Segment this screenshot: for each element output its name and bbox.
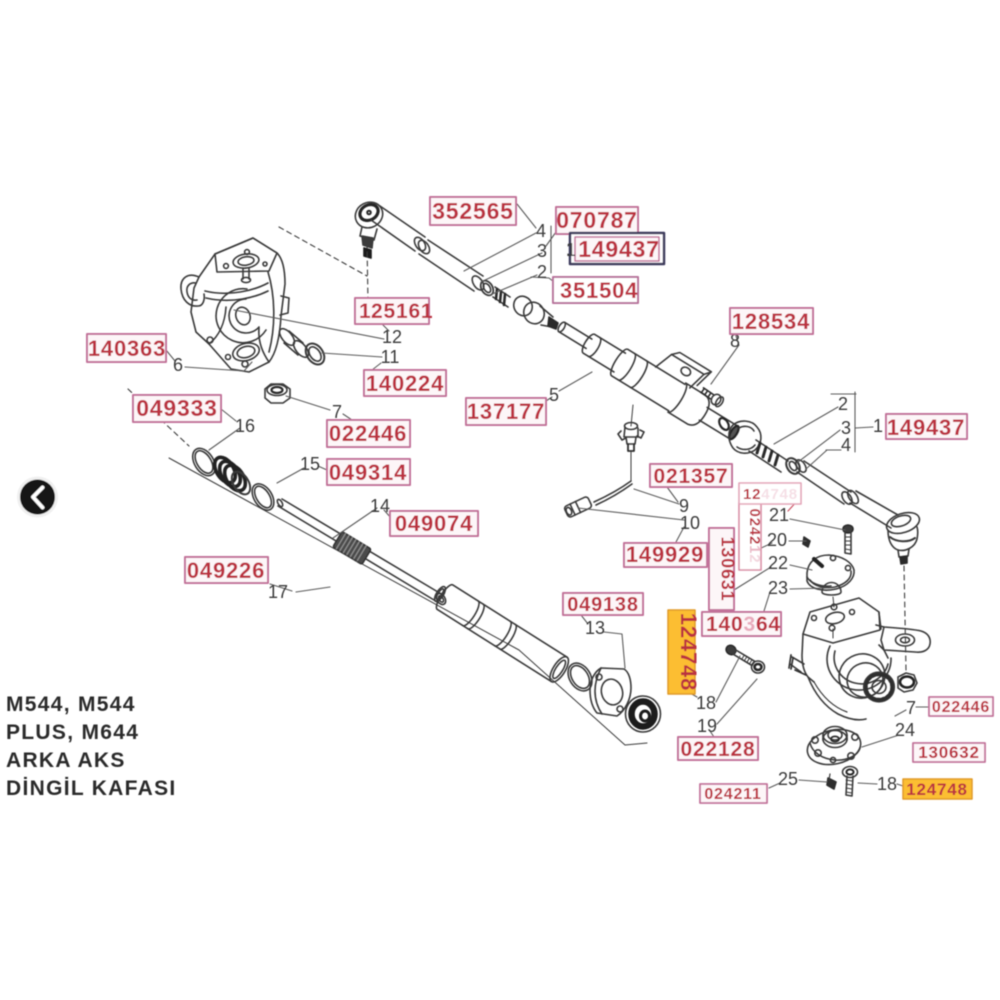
svg-text:124748: 124748 [676,613,701,691]
svg-text:128534: 128534 [732,309,810,334]
svg-text:1: 1 [873,416,883,436]
svg-text:022128: 022128 [681,738,756,761]
svg-text:22: 22 [768,553,788,573]
svg-text:1: 1 [359,300,371,323]
svg-text:24: 24 [895,720,915,740]
svg-text:11: 11 [381,347,400,367]
svg-text:19: 19 [697,716,717,736]
svg-text:049138: 049138 [567,594,639,616]
svg-text:10: 10 [680,513,700,533]
svg-text:024211: 024211 [704,786,761,803]
svg-text:124748: 124748 [743,486,798,503]
svg-text:7: 7 [906,698,916,718]
svg-text:PLUS, M644: PLUS, M644 [6,721,139,744]
svg-text:14: 14 [370,496,390,516]
svg-text:352565: 352565 [432,198,514,224]
svg-text:18: 18 [696,693,716,713]
svg-text:3: 3 [537,241,547,261]
svg-text:022446: 022446 [329,421,407,446]
svg-text:15: 15 [300,454,320,474]
svg-text:1: 1 [566,240,576,260]
svg-text:137177: 137177 [467,399,545,424]
svg-text:16: 16 [235,416,255,436]
svg-text:13: 13 [585,618,605,638]
svg-text:4: 4 [536,221,546,241]
svg-text:23: 23 [768,578,788,598]
svg-text:140224: 140224 [366,371,444,396]
svg-text:049314: 049314 [329,460,407,485]
svg-text:21: 21 [769,505,789,525]
svg-text:130632: 130632 [918,743,980,762]
svg-text:M544, M544: M544, M544 [6,693,136,716]
svg-text:124748: 124748 [906,780,968,799]
svg-text:5: 5 [549,385,559,405]
svg-text:049333: 049333 [136,395,218,421]
svg-text:049226: 049226 [187,558,265,583]
svg-text:6: 6 [173,355,183,375]
svg-text:4: 4 [841,435,851,455]
svg-text:25161: 25161 [371,300,433,323]
svg-text:024212: 024212 [746,509,763,564]
svg-text:20: 20 [767,530,787,550]
svg-text:2: 2 [537,262,547,282]
svg-text:18: 18 [877,774,897,794]
svg-text:022446: 022446 [932,699,990,716]
svg-text:049074: 049074 [395,511,473,536]
svg-text:140363: 140363 [88,336,166,361]
svg-text:DİNGİL KAFASI: DİNGİL KAFASI [6,777,177,800]
svg-text:149437: 149437 [578,236,660,262]
svg-text:149437: 149437 [887,415,965,440]
svg-text:25: 25 [778,769,798,789]
svg-text:149929: 149929 [626,542,704,567]
svg-text:130631: 130631 [718,537,738,602]
svg-text:140364: 140364 [706,613,781,636]
svg-text:070787: 070787 [556,207,638,233]
svg-text:ARKA AKS: ARKA AKS [6,749,126,772]
svg-text:51504: 51504 [573,278,638,303]
svg-text:3: 3 [560,278,573,303]
svg-text:12: 12 [382,327,402,347]
svg-text:021357: 021357 [654,465,729,488]
svg-text:2: 2 [838,394,848,414]
svg-text:17: 17 [268,582,288,602]
